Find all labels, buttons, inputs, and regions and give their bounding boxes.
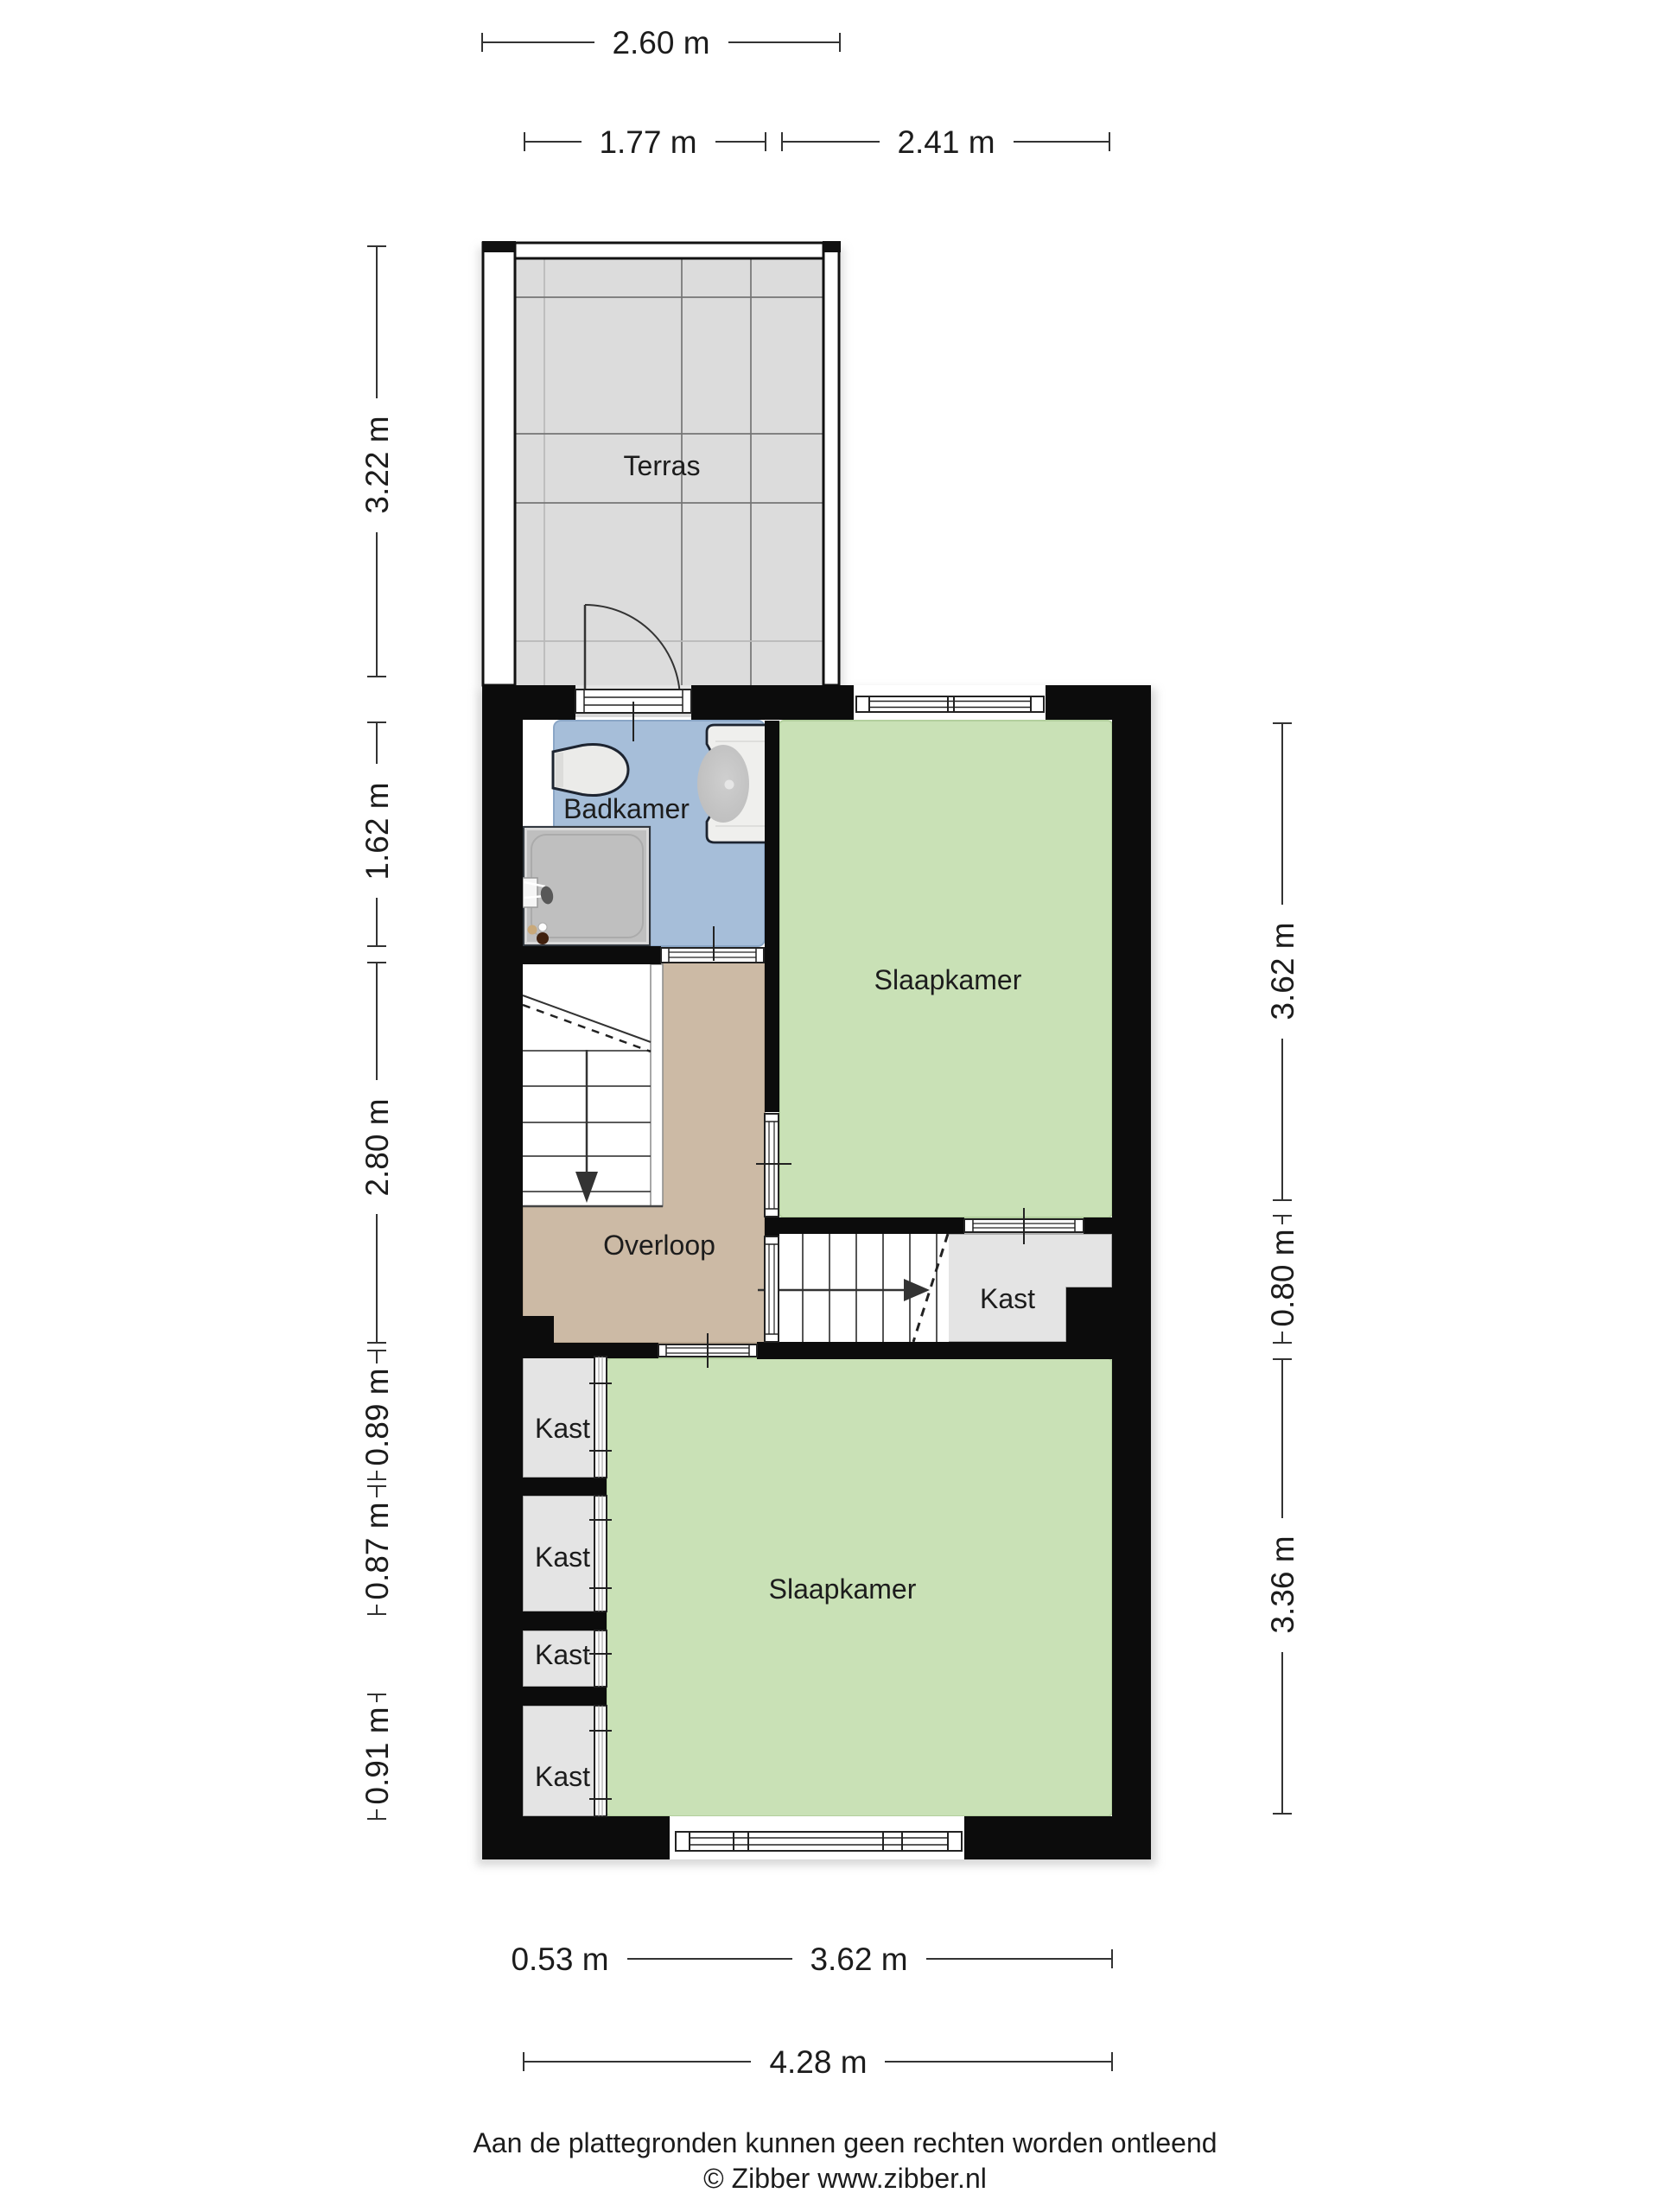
svg-text:Kast: Kast [535, 1639, 590, 1670]
svg-text:Kast: Kast [535, 1413, 590, 1444]
svg-text:2.41 m: 2.41 m [897, 124, 995, 160]
svg-text:1.77 m: 1.77 m [599, 124, 696, 160]
svg-text:© Zibber www.zibber.nl: © Zibber www.zibber.nl [703, 2163, 987, 2194]
svg-text:Terras: Terras [624, 450, 701, 481]
svg-text:3.36 m: 3.36 m [1265, 1535, 1300, 1633]
svg-text:1.62 m: 1.62 m [359, 782, 395, 880]
svg-text:0.87 m: 0.87 m [359, 1502, 395, 1599]
svg-text:0.91 m: 0.91 m [359, 1707, 395, 1804]
svg-text:0.80 m: 0.80 m [1265, 1229, 1300, 1326]
svg-text:2.60 m: 2.60 m [612, 25, 709, 60]
svg-text:3.22 m: 3.22 m [359, 416, 395, 513]
svg-text:Overloop: Overloop [603, 1230, 715, 1261]
svg-text:0.53 m: 0.53 m [511, 1942, 608, 1977]
svg-text:3.62 m: 3.62 m [810, 1942, 907, 1977]
svg-text:Kast: Kast [535, 1761, 590, 1792]
svg-text:Badkamer: Badkamer [563, 793, 690, 824]
svg-text:3.62 m: 3.62 m [1265, 922, 1300, 1020]
svg-text:0.89 m: 0.89 m [359, 1368, 395, 1465]
svg-text:Kast: Kast [535, 1541, 590, 1573]
svg-text:Aan de plattegronden kunnen ge: Aan de plattegronden kunnen geen rechten… [473, 2127, 1217, 2158]
svg-text:Kast: Kast [980, 1283, 1035, 1314]
svg-text:Slaapkamer: Slaapkamer [874, 964, 1022, 995]
svg-text:Slaapkamer: Slaapkamer [769, 1573, 917, 1605]
svg-text:2.80 m: 2.80 m [359, 1098, 395, 1196]
svg-text:4.28 m: 4.28 m [769, 2044, 867, 2080]
